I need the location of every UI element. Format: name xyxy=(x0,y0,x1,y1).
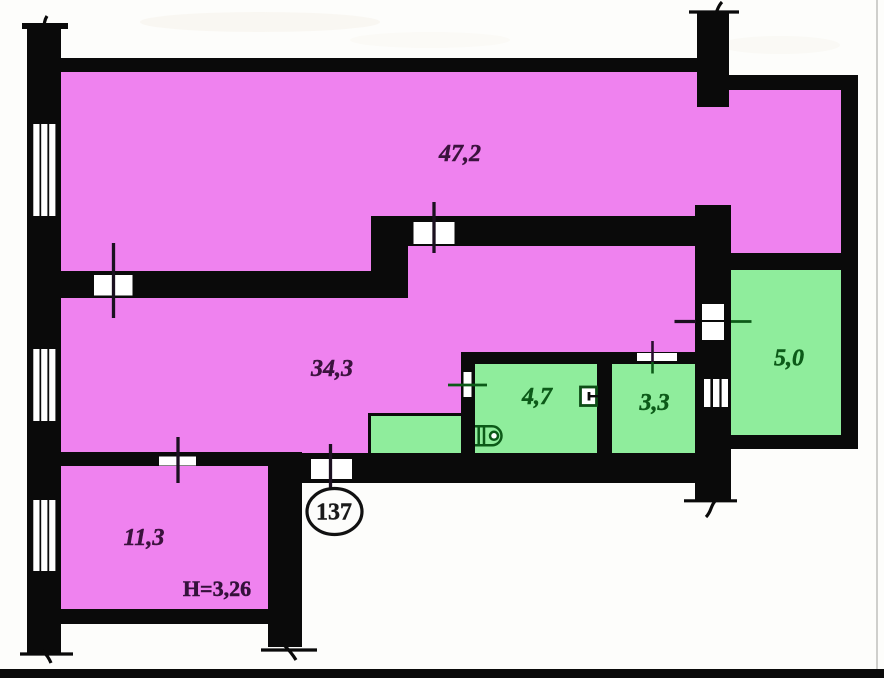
svg-text:4,7: 4,7 xyxy=(521,384,553,410)
svg-text:11,3: 11,3 xyxy=(124,525,165,551)
svg-text:137: 137 xyxy=(316,500,352,526)
svg-text:H=3,26: H=3,26 xyxy=(183,576,251,601)
svg-text:47,2: 47,2 xyxy=(438,141,481,167)
svg-text:34,3: 34,3 xyxy=(310,356,353,382)
svg-text:3,3: 3,3 xyxy=(639,390,670,416)
svg-text:5,0: 5,0 xyxy=(774,346,804,372)
